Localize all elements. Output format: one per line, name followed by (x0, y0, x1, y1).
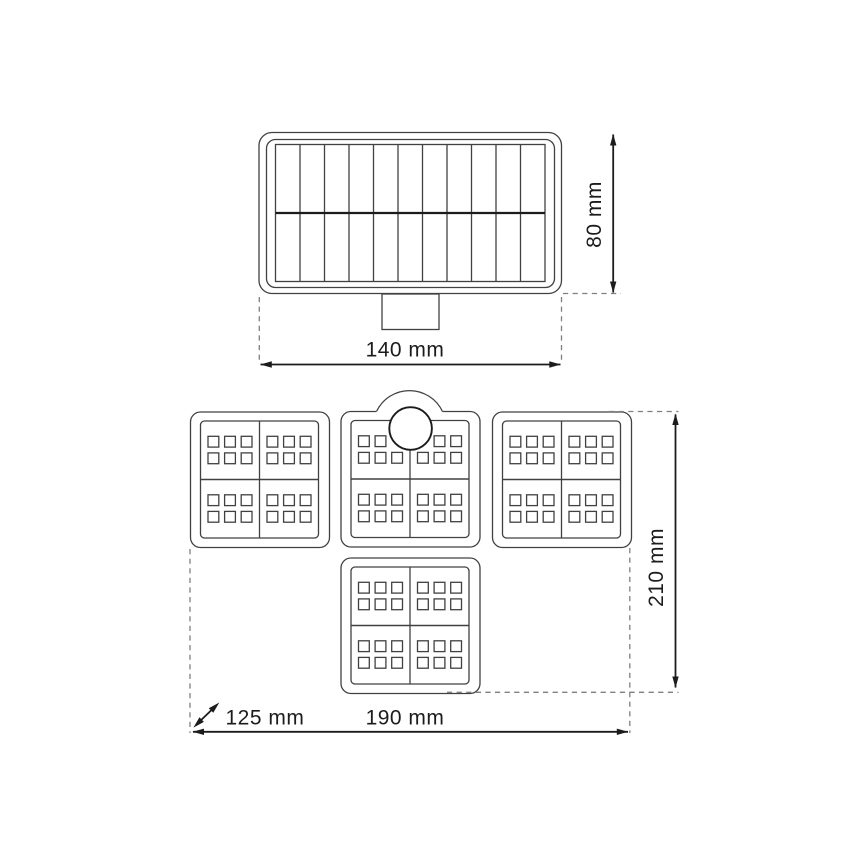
svg-text:80 mm: 80 mm (583, 181, 606, 248)
svg-text:140 mm: 140 mm (366, 339, 445, 362)
svg-text:210 mm: 210 mm (645, 528, 668, 607)
svg-text:125 mm: 125 mm (226, 707, 305, 730)
svg-text:190 mm: 190 mm (366, 707, 445, 730)
